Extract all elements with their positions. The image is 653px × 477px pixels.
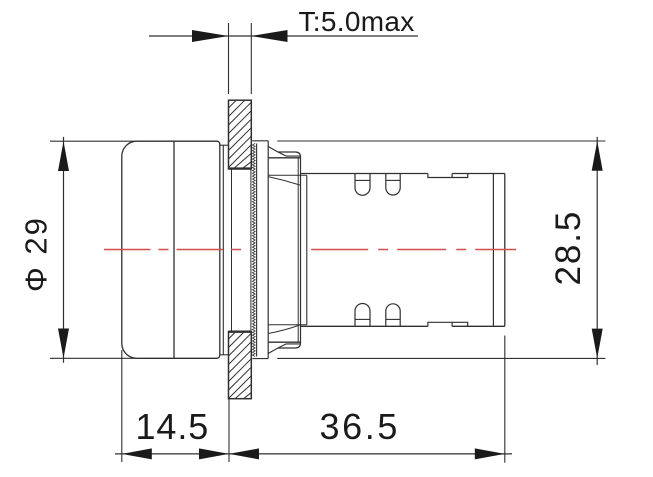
- svg-text:36.5: 36.5: [320, 406, 400, 447]
- svg-text:Φ 29: Φ 29: [19, 216, 54, 292]
- svg-text:14.5: 14.5: [136, 406, 210, 447]
- svg-text:T:5.0max: T:5.0max: [299, 6, 415, 37]
- svg-text:28.5: 28.5: [549, 210, 588, 286]
